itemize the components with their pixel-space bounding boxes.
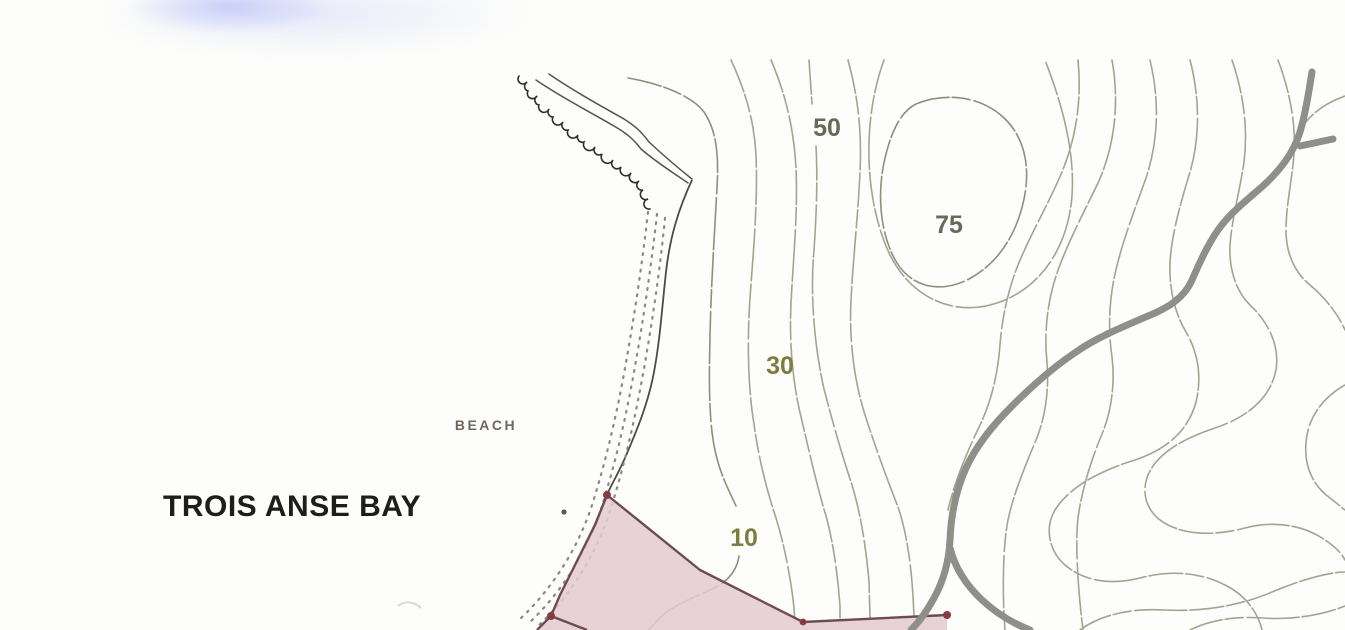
contour-line <box>812 146 870 617</box>
parcel-corner-dot <box>800 619 807 626</box>
contour-line <box>848 60 914 616</box>
contour-lines-east <box>948 60 1345 630</box>
contour-loops-hill <box>869 60 1073 308</box>
shore-marker-dot <box>561 509 566 514</box>
land-parcels <box>537 491 951 630</box>
contour-line <box>628 78 736 506</box>
contour-line <box>1145 60 1345 560</box>
contour-label-75: 75 <box>935 211 963 239</box>
contour-line <box>809 60 812 104</box>
contour-label-30: 30 <box>766 352 794 380</box>
road <box>911 72 1333 630</box>
contour-loop <box>869 60 1073 308</box>
parcel-corner-dot <box>603 491 611 499</box>
beach-label: BEACH <box>455 417 517 433</box>
contour-loop-summit <box>881 97 1027 287</box>
topographic-map-image: 50 75 30 10 BEACH TROIS ANSE BAY <box>0 0 1345 630</box>
backshore-boundary-line <box>607 180 692 495</box>
shore-inner-line <box>536 80 688 183</box>
contour-line <box>1190 606 1345 630</box>
contour-line <box>1306 385 1345 510</box>
road-line-spur <box>1300 139 1333 146</box>
map-viewer: 50 75 30 10 BEACH TROIS ANSE BAY <box>0 0 1345 630</box>
parcel-corner-dot <box>943 611 951 619</box>
bay-name-label: TROIS ANSE BAY <box>163 490 421 523</box>
contour-line <box>948 60 1079 510</box>
parcel-corner-dot <box>547 612 555 620</box>
contour-label-50: 50 <box>813 114 841 142</box>
map-labels: 50 75 30 10 BEACH TROIS ANSE BAY <box>163 114 963 552</box>
contour-label-10: 10 <box>730 524 758 552</box>
contour-lines-west <box>628 60 914 630</box>
contour-line <box>1003 60 1115 630</box>
rock-mark <box>398 602 421 608</box>
road-line-branch <box>950 548 1030 630</box>
